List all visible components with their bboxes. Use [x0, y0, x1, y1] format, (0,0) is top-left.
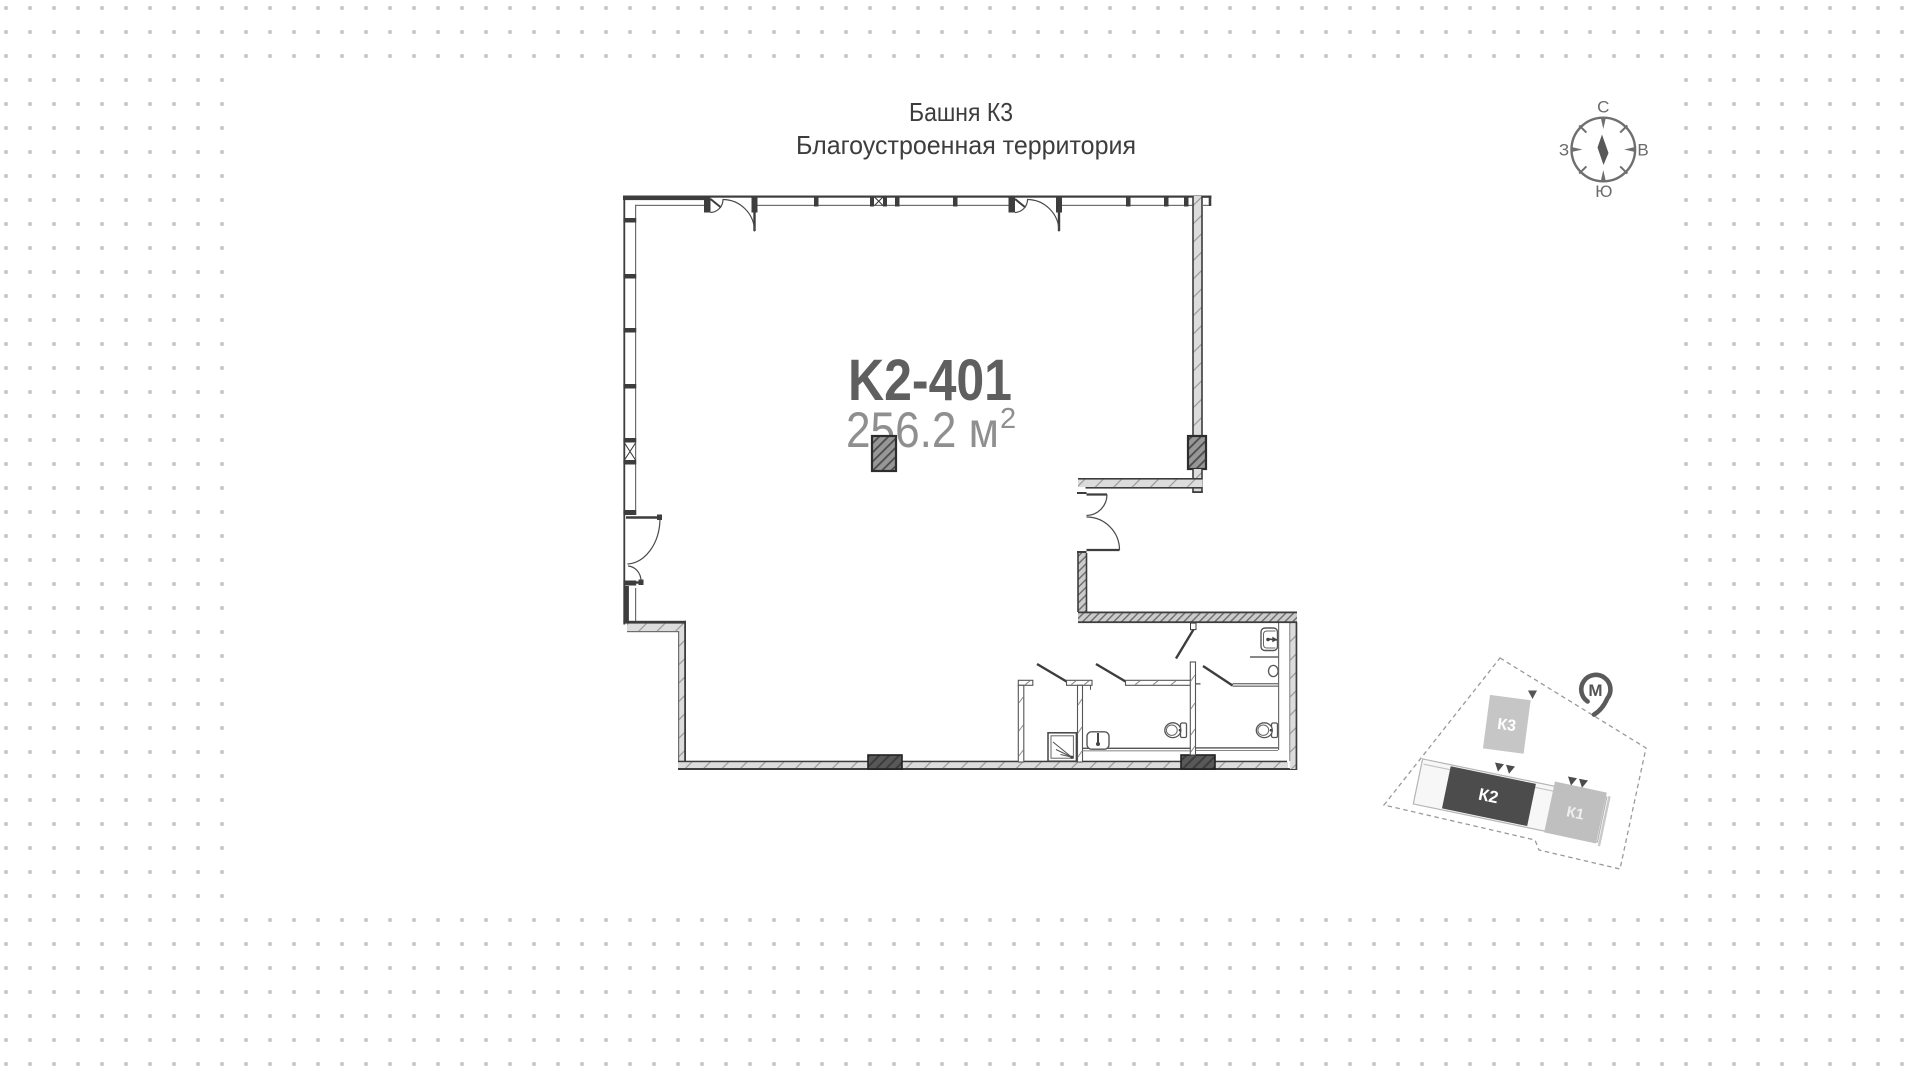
svg-text:З: З	[1559, 141, 1569, 160]
svg-text:М: М	[1588, 681, 1602, 700]
svg-text:К1: К1	[1565, 803, 1586, 823]
svg-text:Башня К3: Башня К3	[909, 97, 1013, 127]
svg-text:Ю: Ю	[1595, 182, 1612, 201]
svg-text:К2: К2	[1477, 785, 1500, 808]
svg-text:256.2 м: 256.2 м	[846, 402, 999, 458]
svg-text:К3: К3	[1496, 716, 1517, 735]
svg-text:С: С	[1597, 98, 1609, 117]
svg-text:Благоустроенная территория: Благоустроенная территория	[796, 130, 1136, 160]
svg-text:2: 2	[1000, 403, 1016, 435]
svg-text:В: В	[1637, 141, 1648, 160]
